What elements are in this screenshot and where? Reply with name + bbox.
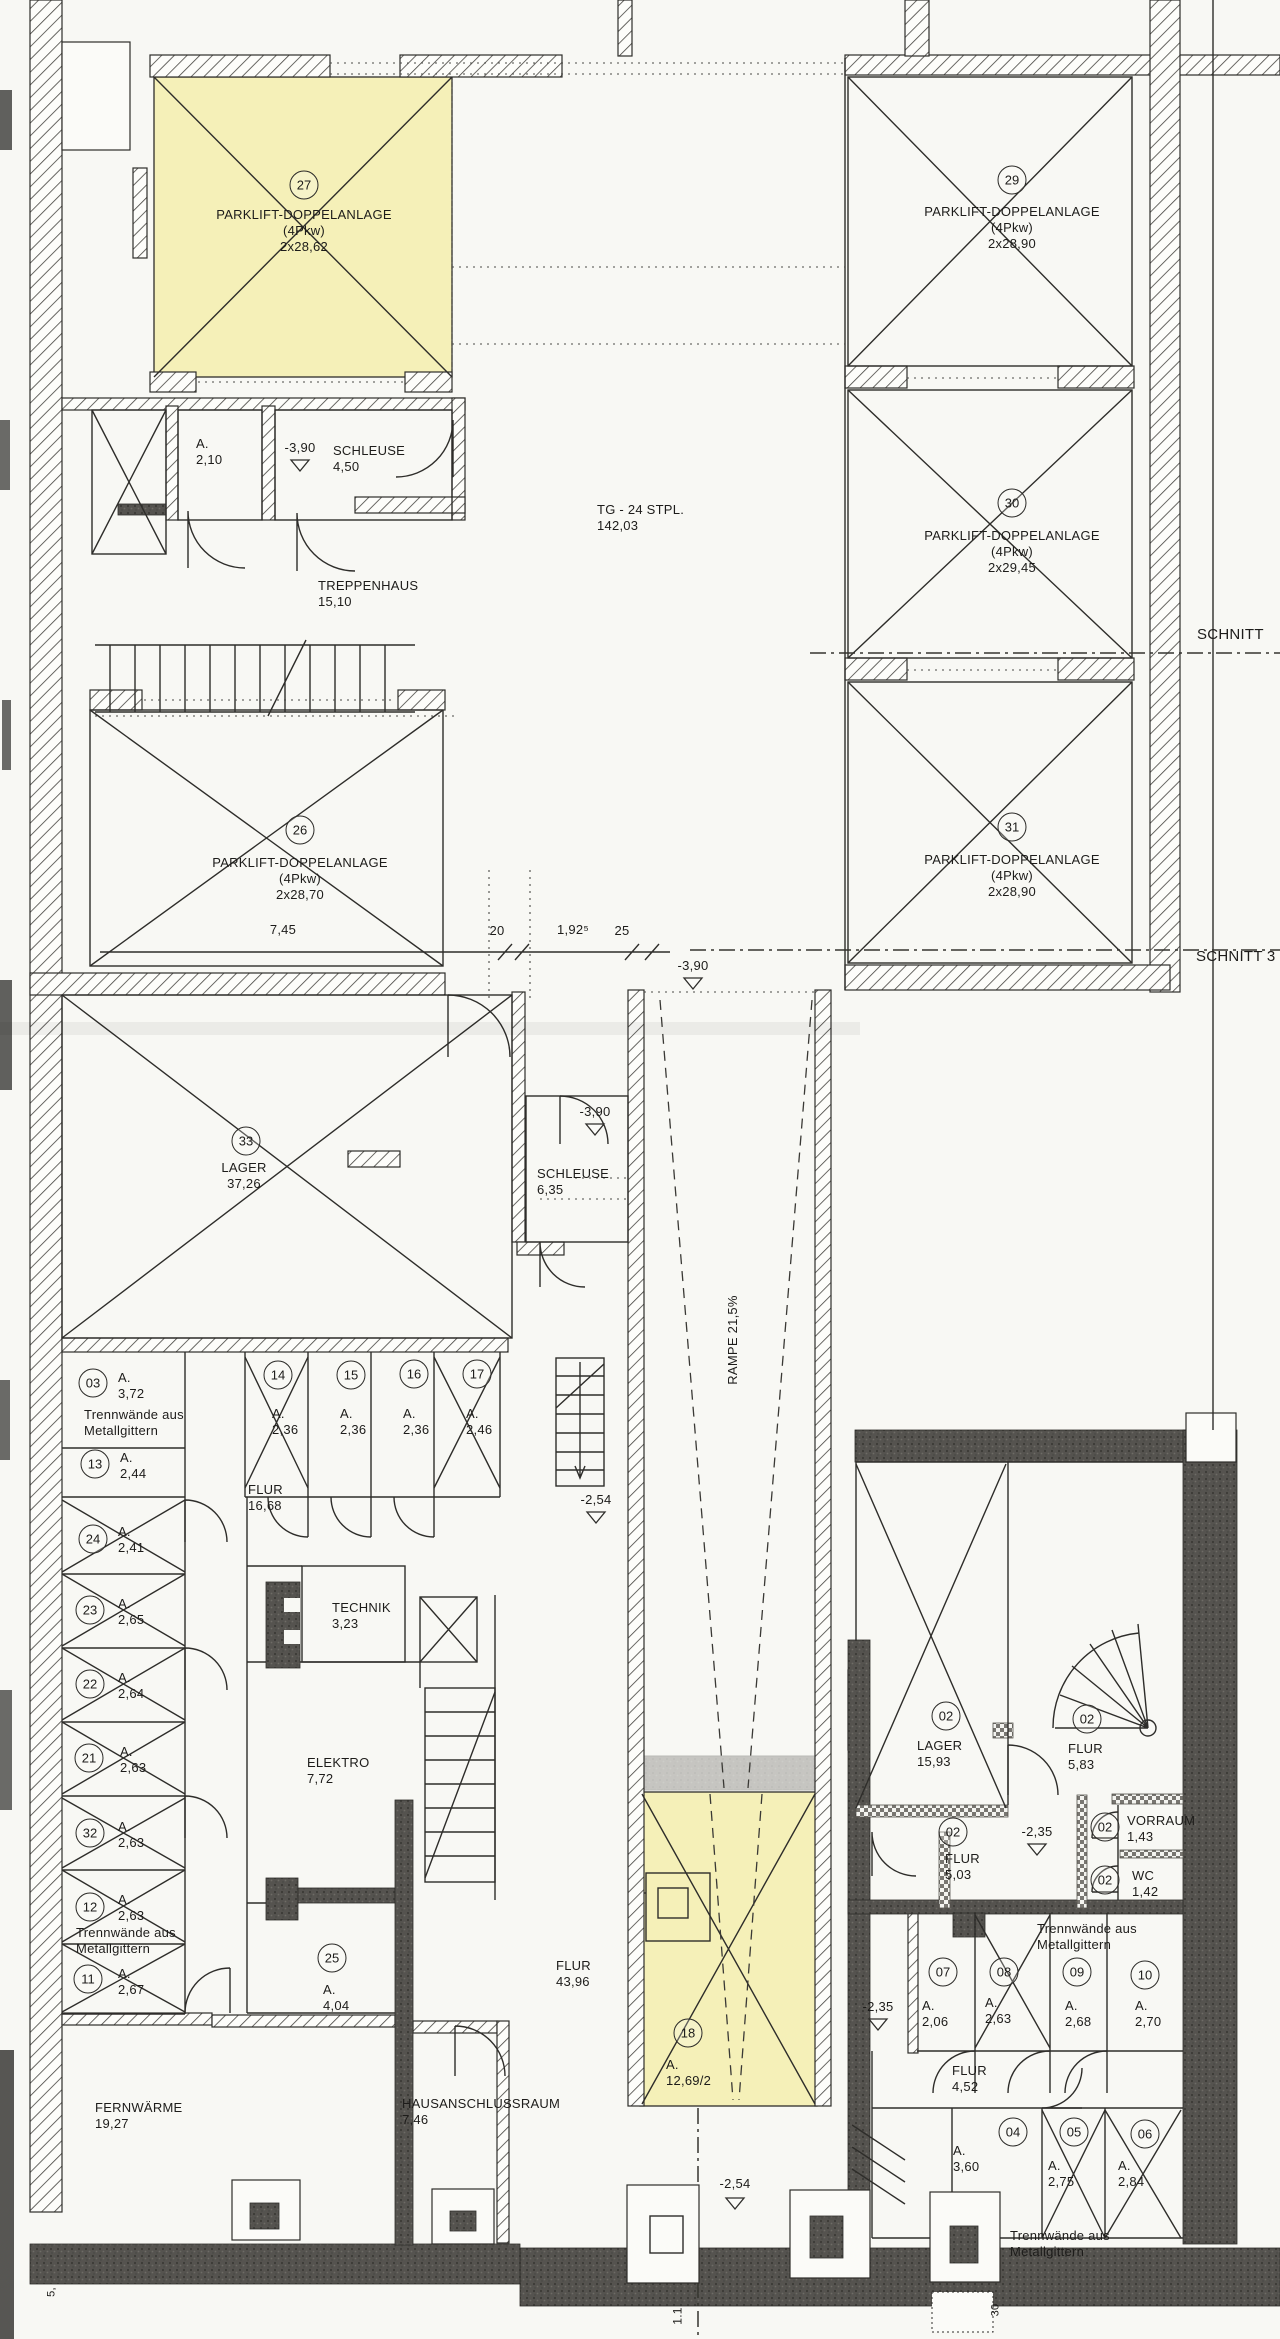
stairs	[95, 640, 1156, 2204]
highlight-rooms	[154, 77, 817, 2106]
floor-plan: 27PARKLIFT-DOPPELANLAGE(4Pkw)2x28,6229PA…	[0, 0, 1280, 2339]
plan-drawing	[0, 0, 1280, 2339]
dimension-line	[100, 944, 670, 960]
walls-checker	[856, 1723, 1183, 1908]
